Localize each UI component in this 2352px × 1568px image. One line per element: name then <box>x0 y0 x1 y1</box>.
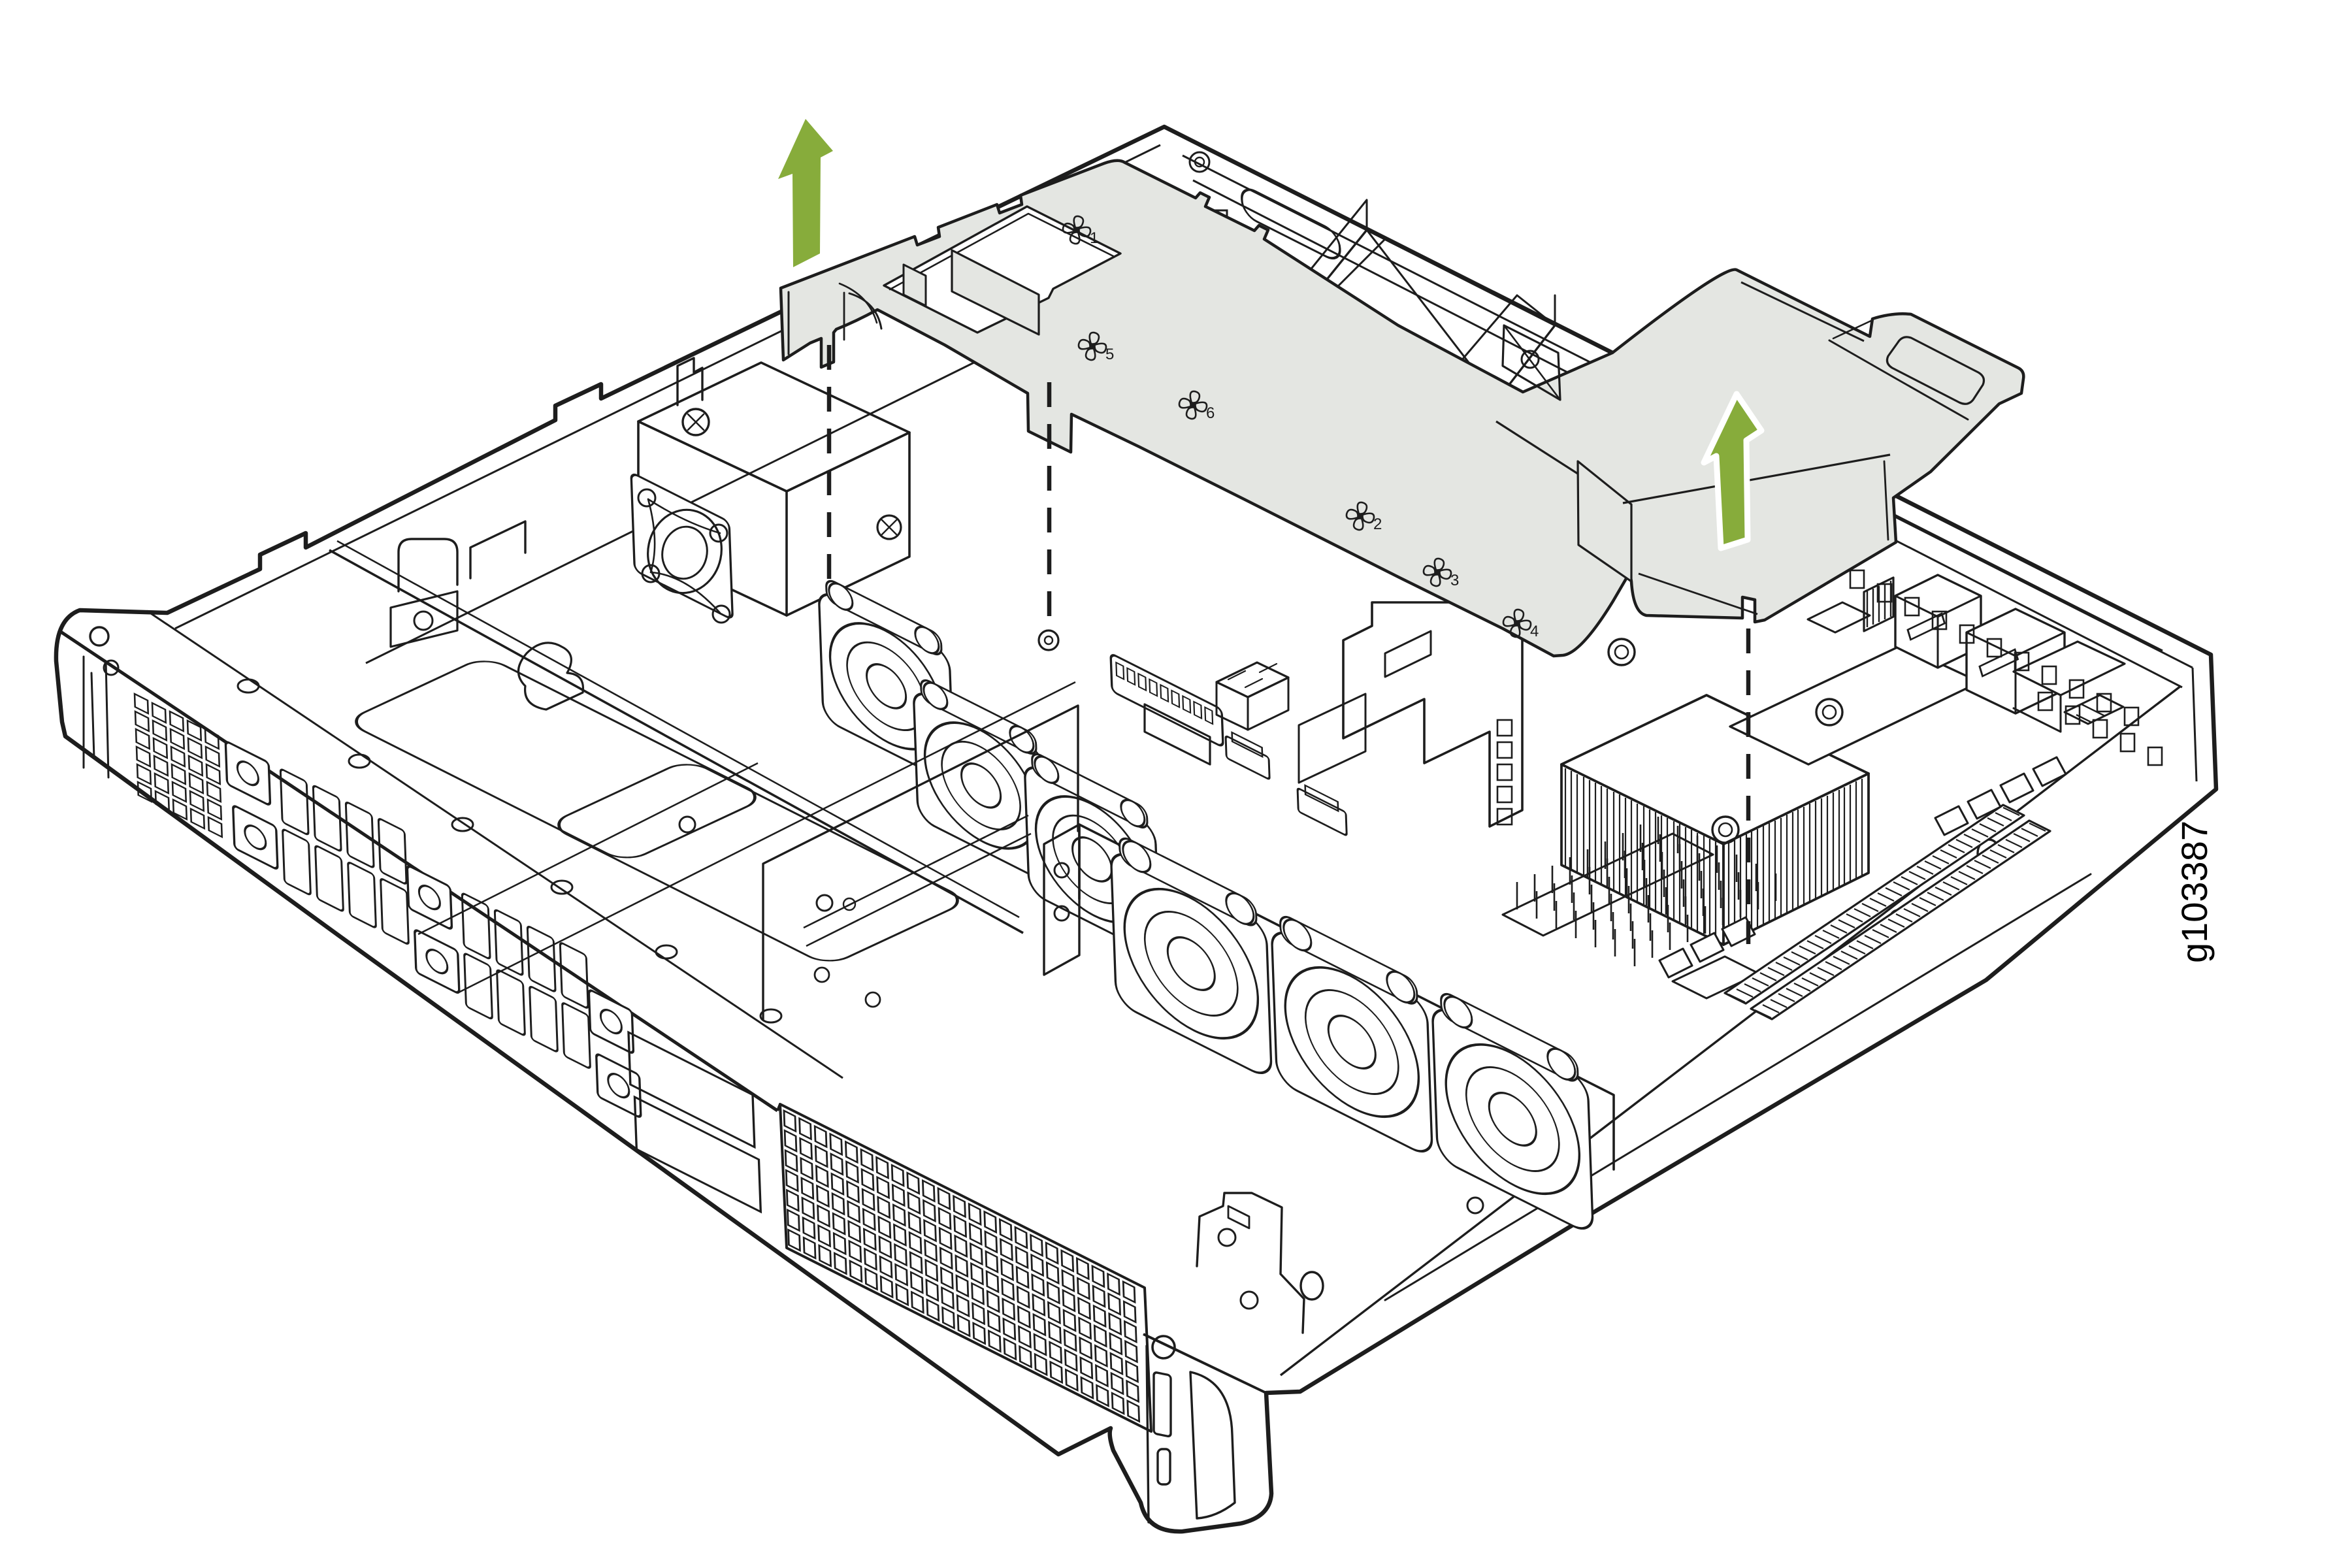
svg-text:6: 6 <box>1206 404 1215 422</box>
svg-text:2: 2 <box>1373 515 1382 533</box>
svg-text:3: 3 <box>1450 572 1459 589</box>
svg-text:4: 4 <box>1530 623 1539 640</box>
svg-text:g103387: g103387 <box>2174 821 2215 963</box>
svg-text:1: 1 <box>1090 229 1098 247</box>
svg-text:5: 5 <box>1105 346 1114 363</box>
